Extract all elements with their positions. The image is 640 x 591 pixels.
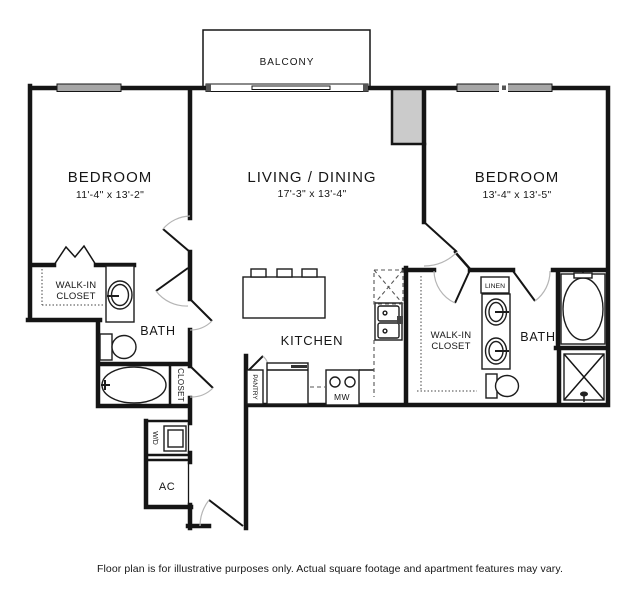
kitchen-island <box>243 277 325 318</box>
living-dining-label: LIVING / DINING <box>247 169 376 186</box>
bathtub <box>563 278 603 340</box>
chase-fill <box>392 90 424 144</box>
linen-label: LINEN <box>485 283 505 290</box>
laundry-fixtures <box>164 426 186 451</box>
refrigerator <box>267 363 308 404</box>
floorplan-drawing: BALCONY BEDROOM 11'-4" x 13'-2" LIVING /… <box>0 0 640 591</box>
walk-in-closet-left-line1: WALK-IN <box>56 280 97 291</box>
sink-basin <box>378 323 399 338</box>
disclaimer-text: Floor plan is for illustrative purposes … <box>97 563 563 575</box>
kitchen-label: KITCHEN <box>281 333 344 348</box>
bath-left-label: BATH <box>140 324 176 338</box>
closet-accordion-door <box>54 246 96 265</box>
walk-in-closet-right-line2: CLOSET <box>431 341 470 352</box>
pantry-label: PANTRY <box>251 374 258 400</box>
burner <box>345 377 355 387</box>
bedroom-right-dims: 13'-4" x 13'-5" <box>482 189 551 201</box>
sink-faucet <box>397 316 403 324</box>
burner <box>330 377 340 387</box>
sliding-door-panel <box>252 86 330 90</box>
slider-cap-right <box>363 84 368 92</box>
floorplan-page: BALCONY BEDROOM 11'-4" x 13'-2" LIVING /… <box>0 0 640 591</box>
washer-dryer-label: W/D <box>151 431 158 445</box>
tub-faucet <box>574 273 592 278</box>
window-bedroom-left <box>57 84 121 92</box>
toilet-bowl <box>496 376 519 397</box>
closet-label: CLOSET <box>176 368 185 402</box>
bar-stool <box>302 269 317 277</box>
bathtub <box>102 367 166 403</box>
bedroom-right-label: BEDROOM <box>475 169 560 186</box>
bedroom-left-dims: 11'-4" x 13'-2" <box>76 189 144 201</box>
bar-stool <box>277 269 292 277</box>
sink-basin <box>378 306 399 321</box>
slider-cap-left <box>206 84 211 92</box>
sink-drain <box>383 329 387 333</box>
toilet-bowl <box>112 336 136 359</box>
washer-dryer-door <box>168 430 183 447</box>
bedroom-left-label: BEDROOM <box>68 169 153 186</box>
shower-drain <box>580 392 588 397</box>
ac-label: AC <box>159 481 175 493</box>
window-mullion <box>502 86 506 91</box>
walk-in-closet-right-line1: WALK-IN <box>431 330 472 341</box>
bar-stool <box>251 269 266 277</box>
sink-drain <box>383 311 387 315</box>
walk-in-closet-left-line2: CLOSET <box>56 291 95 302</box>
toilet-tank <box>100 334 112 360</box>
microwave-label: MW <box>334 392 350 402</box>
living-dining-dims: 17'-3" x 13'-4" <box>277 188 346 200</box>
utility-chase <box>392 90 424 144</box>
balcony-label: BALCONY <box>260 57 315 68</box>
bath-right-label: BATH <box>520 330 556 344</box>
